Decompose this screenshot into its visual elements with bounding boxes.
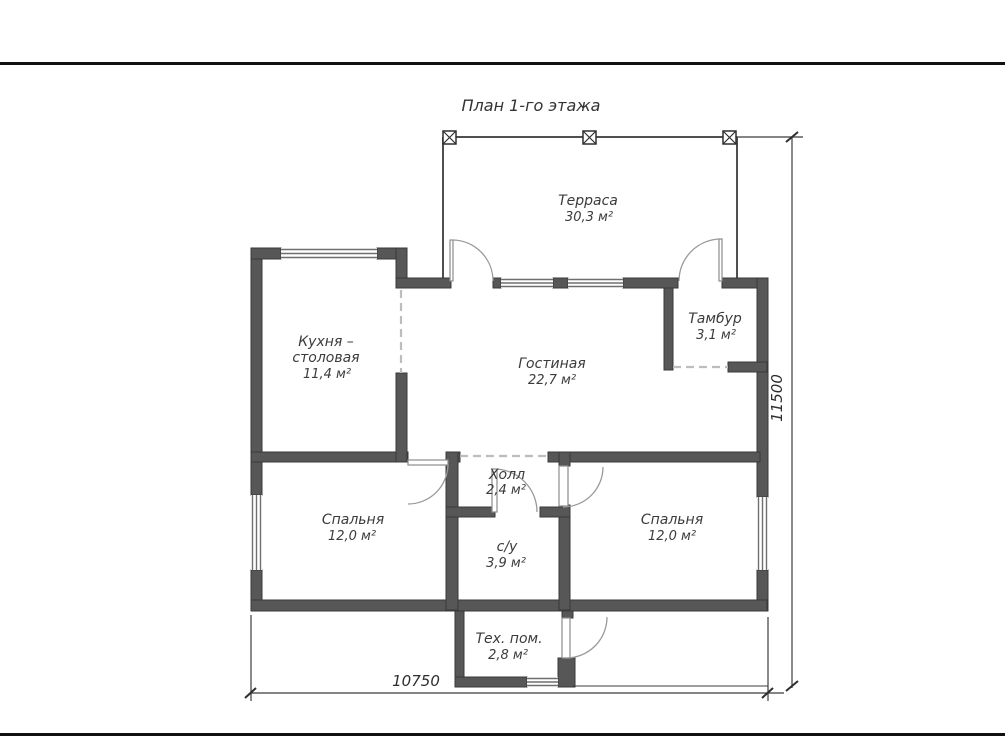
svg-text:12,0 м²: 12,0 м² [328,529,376,544]
door-arc [679,239,722,281]
room-label-bedroom-left: Спальня 12,0 м² [322,512,384,544]
svg-text:2,8 м²: 2,8 м² [488,648,528,663]
window [281,248,377,259]
window [568,278,623,288]
svg-text:Спальня: Спальня [641,512,703,528]
svg-text:Терраса: Терраса [558,193,618,209]
window [251,495,262,570]
dimension-width-label: 10750 [392,672,440,690]
svg-text:с/у: с/у [497,539,518,555]
room-label-bedroom-right: Спальня 12,0 м² [641,512,703,544]
room-label-hall: Холл 2,4 м² [486,467,526,498]
room-label-living: Гостиная 22,7 м² [518,356,585,388]
door-arc [562,617,607,658]
door-arc [450,240,493,281]
svg-text:30,3 м²: 30,3 м² [565,210,613,225]
floor-plan-canvas: План 1-го этажа [0,0,1005,754]
svg-text:2,4 м²: 2,4 м² [486,483,526,498]
svg-text:Гостиная: Гостиная [518,356,585,372]
door-arc [559,466,603,507]
svg-text:3,9 м²: 3,9 м² [486,556,526,571]
svg-text:столовая: столовая [292,350,359,366]
room-label-terrace: Терраса 30,3 м² [558,193,618,225]
window [757,497,768,570]
door-arc [408,460,448,504]
svg-text:Холл: Холл [488,467,525,483]
dimension-lines [245,132,803,701]
svg-text:22,7 м²: 22,7 м² [528,373,576,388]
window [501,278,553,288]
svg-text:Спальня: Спальня [322,512,384,528]
room-label-tambour: Тамбур 3,1 м² [688,311,742,343]
room-label-tech: Тех. пом. 2,8 м² [475,631,542,663]
column-marker-icon [583,131,596,144]
svg-text:3,1 м²: 3,1 м² [696,328,736,343]
svg-text:Тех. пом.: Тех. пом. [475,631,542,647]
room-label-kitchen: Кухня – столовая 11,4 м² [292,334,359,382]
svg-text:Тамбур: Тамбур [688,311,742,327]
column-marker-icon [723,131,736,144]
svg-text:Кухня –: Кухня – [298,334,354,350]
svg-text:11,4 м²: 11,4 м² [303,367,351,382]
dimension-height-label: 11500 [768,374,786,422]
room-label-bathroom: с/у 3,9 м² [486,539,526,571]
plan-title: План 1-го этажа [462,96,601,115]
window [527,677,558,687]
svg-text:12,0 м²: 12,0 м² [648,529,696,544]
column-marker-icon [443,131,456,144]
